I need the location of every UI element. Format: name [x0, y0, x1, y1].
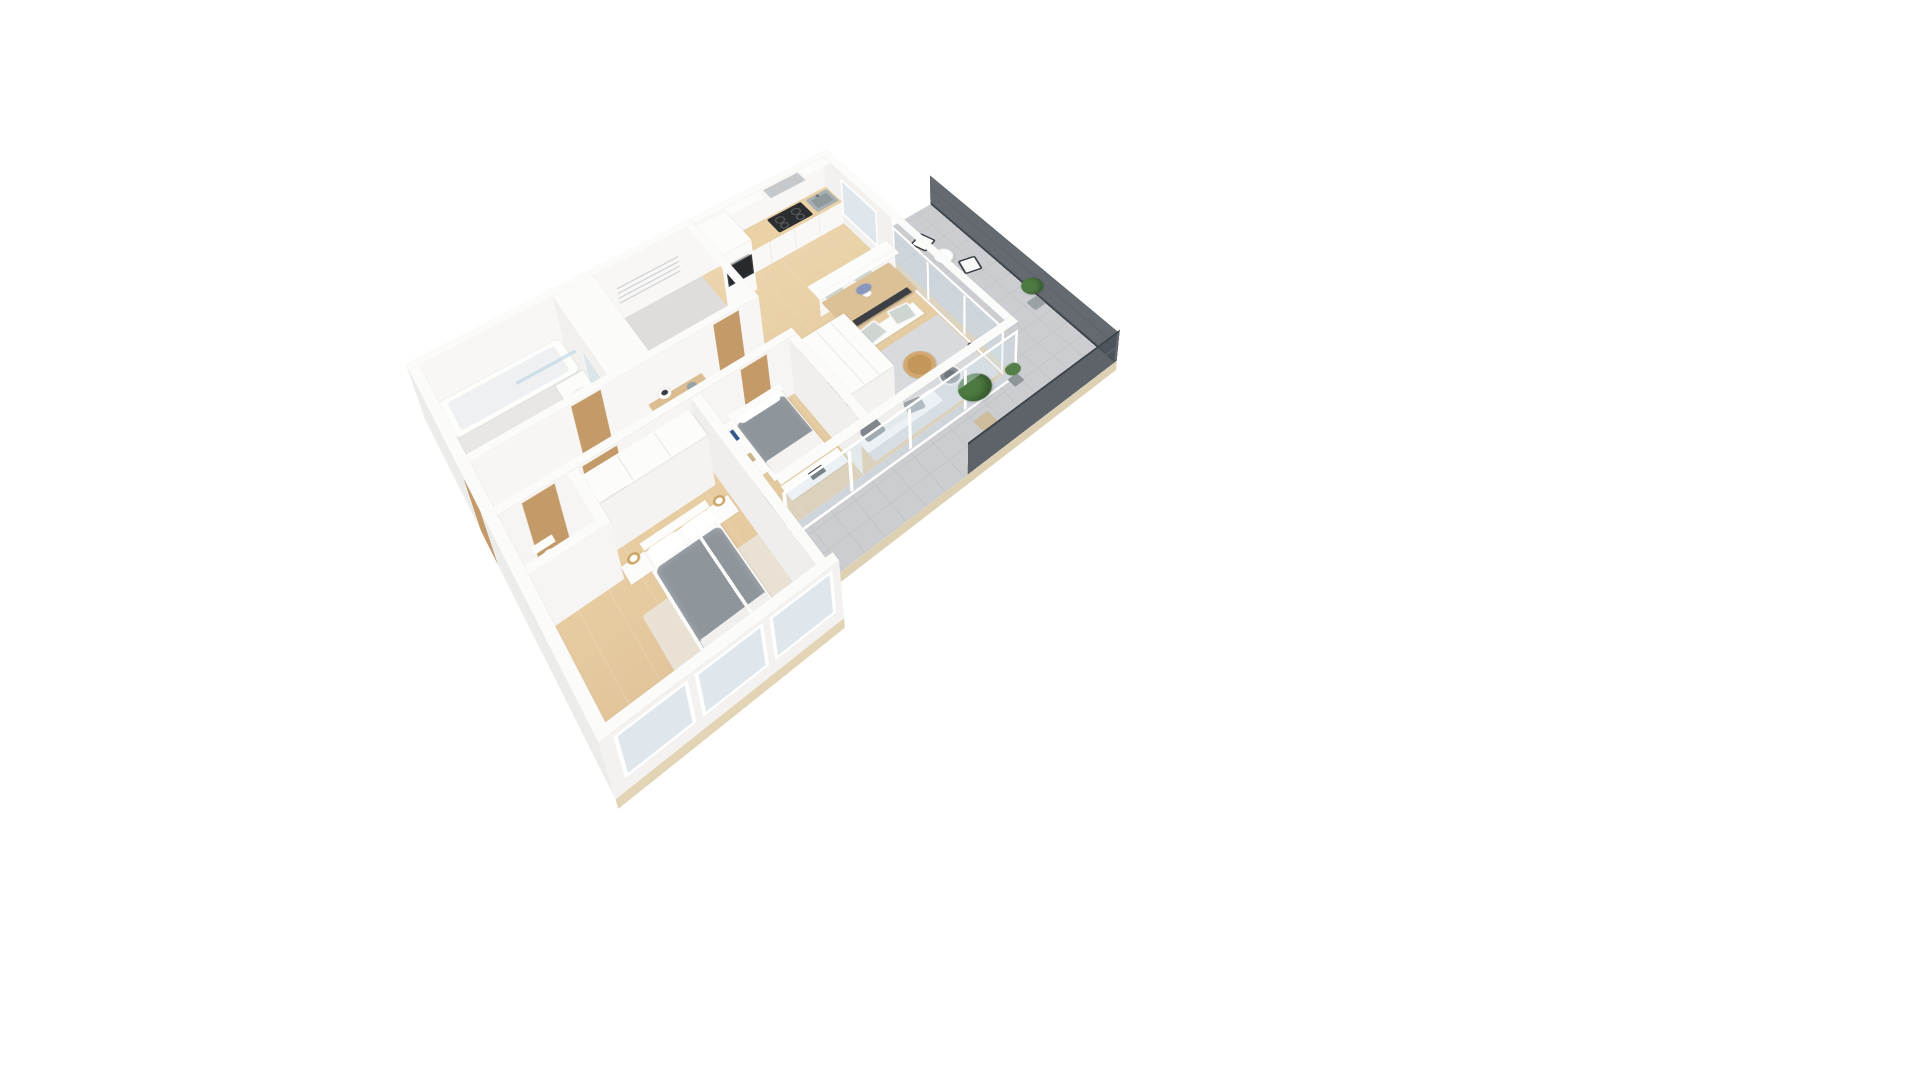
floorplan-render-canvas — [0, 0, 1920, 1080]
window-mullion — [908, 408, 912, 450]
window-mullion — [848, 450, 854, 492]
cabinet-seam — [794, 229, 796, 249]
cabinet-seam — [818, 216, 820, 236]
apartment-3d-plan — [386, 152, 1179, 866]
window-mullion — [927, 261, 930, 301]
wardrobe-door-seam — [617, 455, 634, 480]
viewport — [0, 0, 1920, 1080]
cabinet-seam — [769, 243, 772, 263]
window-mullion — [963, 295, 965, 336]
wardrobe-door-seam — [654, 432, 671, 456]
door-handle-icon — [484, 528, 487, 534]
